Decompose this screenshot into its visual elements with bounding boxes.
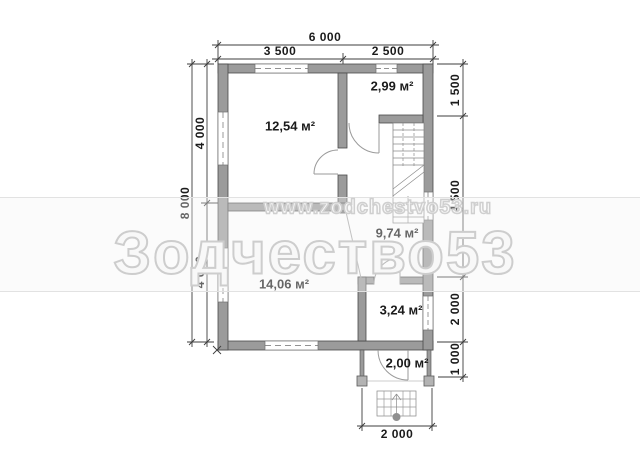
dim-bottom-porch: 2 000 bbox=[381, 427, 414, 441]
wall-top bbox=[218, 64, 433, 73]
dim-top-overall: 6 000 bbox=[309, 30, 342, 44]
dim-top-right: 2 500 bbox=[372, 44, 405, 58]
window-top-left bbox=[255, 64, 308, 73]
door-entry-room bbox=[349, 123, 379, 153]
wall-entryroom-bottom bbox=[379, 115, 423, 123]
wall-bottom bbox=[218, 341, 433, 350]
entrance-steps-symbol bbox=[377, 391, 416, 421]
dim-right-3: 2 000 bbox=[448, 293, 462, 326]
dim-top-left: 3 500 bbox=[264, 44, 297, 58]
floor-plan-image: 12,54 м² 2,99 м² 9,74 м² 14,06 м² 3,24 м… bbox=[0, 0, 640, 470]
window-bottom bbox=[265, 341, 318, 350]
room-label-porch: 2,00 м² bbox=[386, 356, 429, 371]
wall-hall-upper bbox=[338, 73, 347, 148]
steps-start-marker bbox=[393, 413, 401, 421]
watermark-brand: Зодчество53 bbox=[113, 219, 516, 288]
watermark-url: www.zodchestvo53.ru bbox=[264, 197, 492, 220]
window-top-right bbox=[376, 64, 397, 73]
window-left-upper bbox=[218, 112, 228, 165]
dim-right-4: 1 000 bbox=[448, 343, 462, 376]
room-label-wc: 3,24 м² bbox=[380, 303, 423, 318]
door-living-room bbox=[314, 150, 338, 174]
room-label-living: 12,54 м² bbox=[265, 119, 315, 134]
room-label-entry: 2,99 м² bbox=[371, 79, 414, 94]
porch-post-right bbox=[424, 376, 434, 386]
dim-left-upper: 4 000 bbox=[193, 117, 207, 150]
dim-right-1: 1 500 bbox=[448, 74, 462, 107]
porch-post-left bbox=[357, 376, 367, 386]
window-right-wc bbox=[423, 296, 433, 330]
